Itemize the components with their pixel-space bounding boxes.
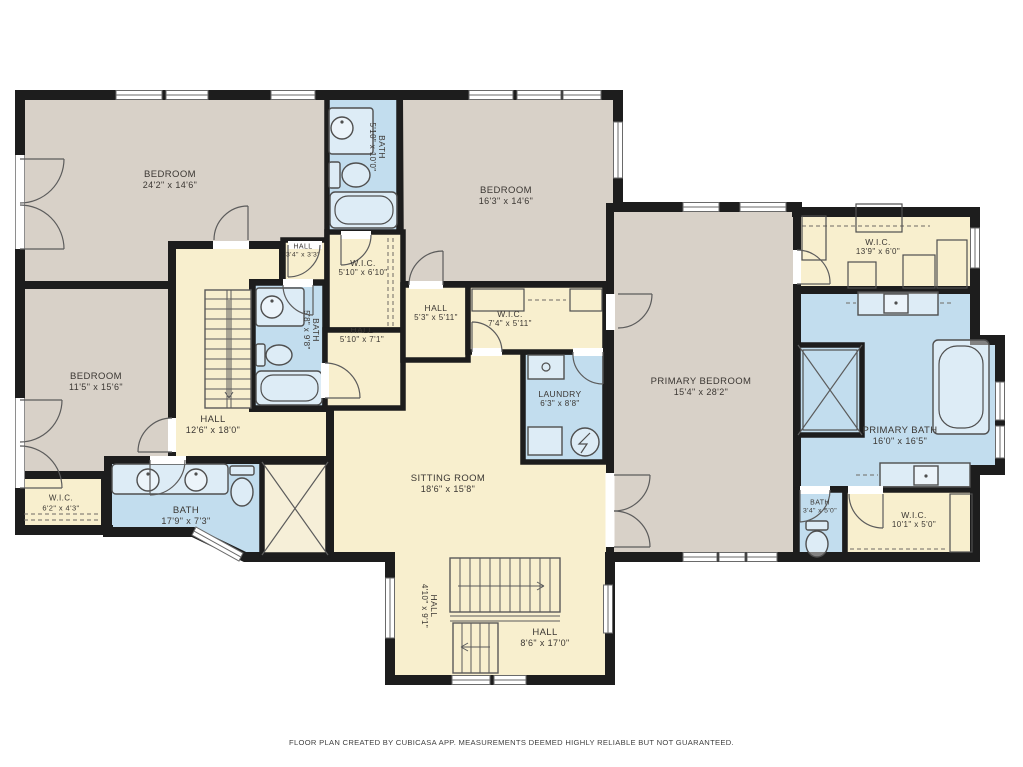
bathtub-fixture <box>256 371 322 405</box>
room-label-bedroom-left: BEDROOM 11'5" x 15'6" <box>69 371 123 393</box>
dryer-fixture <box>528 427 562 455</box>
room-label-wic-primary-top: W.I.C. 13'9" x 6'0" <box>856 237 900 257</box>
room-label-hall-bottom-vertical: HALL 4'10" x 9'1" <box>419 584 439 628</box>
toilet-fixture <box>806 521 828 557</box>
room-label-hall-bottom: HALL 8'6" x 17'0" <box>520 627 569 649</box>
stairs-upper <box>205 290 251 408</box>
water-heater-fixture <box>571 428 599 456</box>
washer-fixture <box>528 355 564 379</box>
room-label-laundry: LAUNDRY 6'3" x 8'8" <box>538 389 581 409</box>
shower-fixture <box>262 462 328 555</box>
room-label-hall-center-a: HALL 5'10" x 7'1" <box>340 325 384 345</box>
toilet-fixture <box>256 344 292 366</box>
room-label-bath-top: BATH 5'10" x 10'0" <box>367 122 387 171</box>
shower-fixture <box>798 345 862 435</box>
room-label-hall-small: HALL 3'4" x 3'3" <box>286 244 320 261</box>
room-label-bath-small: BATH 3'4" x 5'0" <box>803 500 837 517</box>
room-label-primary-bath: PRIMARY BATH 16'0" x 16'5" <box>862 425 937 447</box>
room-label-wic-center-b: W.I.C. 7'4" x 5'11" <box>488 309 532 329</box>
room-label-bedroom-top-right: BEDROOM 16'3" x 14'6" <box>479 185 534 207</box>
room-label-wic-primary-bottom: W.I.C. 10'1" x 5'0" <box>892 510 936 530</box>
sink-fixture <box>256 288 304 326</box>
room-label-bedroom-top-left: BEDROOM 24'2" x 14'6" <box>143 169 198 191</box>
room-label-sitting-room: SITTING ROOM 18'6" x 15'8" <box>411 473 485 495</box>
room-label-bath-center: BATH 5'8" x 9'8" <box>301 310 321 349</box>
bathtub-fixture <box>330 192 397 228</box>
floor-plan-drawing <box>0 0 1023 767</box>
floor-plan: BEDROOM 24'2" x 14'6" BATH 5'10" x 10'0"… <box>0 0 1023 767</box>
room-wic-center-shape <box>327 232 403 330</box>
room-label-bath-left: BATH 17'9" x 7'3" <box>161 505 210 527</box>
footer-disclaimer: FLOOR PLAN CREATED BY CUBICASA APP. MEAS… <box>0 738 1023 747</box>
toilet-fixture <box>230 466 254 506</box>
room-label-wic-center: W.I.C. 5'10" x 6'10" <box>338 258 387 278</box>
room-label-primary-bedroom: PRIMARY BEDROOM 15'4" x 28'2" <box>651 376 752 398</box>
bathtub-fixture <box>933 340 989 434</box>
room-label-hall-center-b: HALL 5'3" x 5'11" <box>414 303 458 323</box>
room-label-hall-left: HALL 12'6" x 18'0" <box>186 414 241 436</box>
toilet-fixture <box>329 162 370 188</box>
sink-fixture <box>846 292 952 315</box>
room-label-wic-left: W.I.C. 6'2" x 4'3" <box>42 494 79 513</box>
